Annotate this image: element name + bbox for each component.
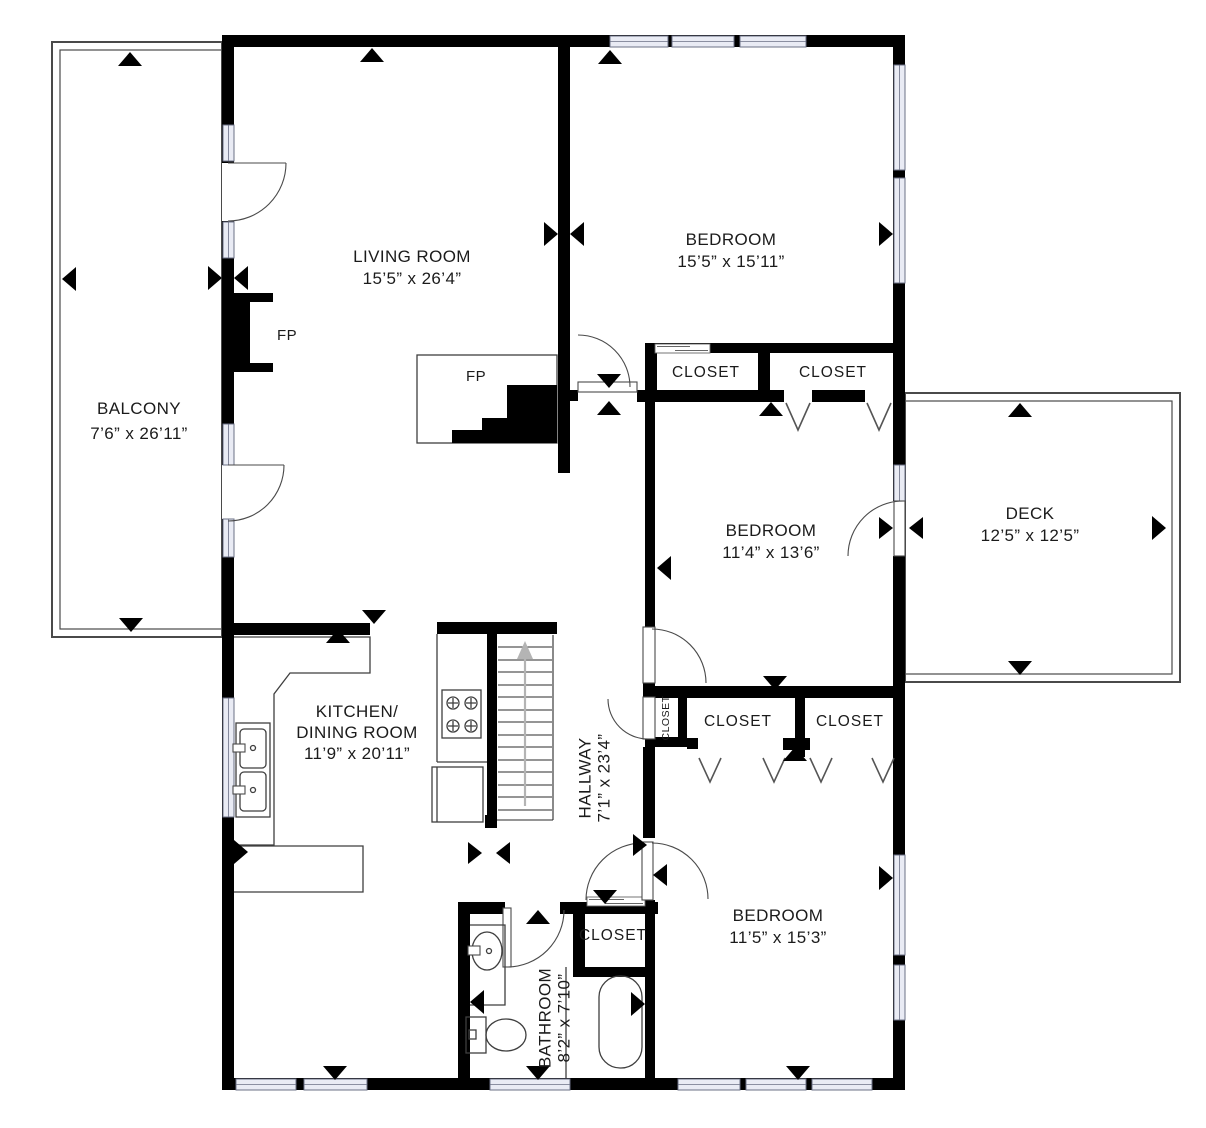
deck-label: DECK [1006, 504, 1055, 523]
bathroom-label: BATHROOM [536, 968, 555, 1068]
closet-top-right-label: CLOSET [799, 364, 867, 381]
bathtub [566, 967, 642, 1078]
fireplace-left-label: FP [277, 327, 297, 344]
hallway-dims: 7’1” x 23’4” [595, 734, 614, 823]
kitchen-counter [234, 634, 487, 892]
living-room-dims: 15’5” x 26’4” [363, 269, 462, 288]
closet-lower-left-label: CLOSET [704, 713, 772, 730]
stove [442, 690, 481, 738]
closet-top-left-label: CLOSET [672, 364, 740, 381]
fireplace-center-label: FP [466, 368, 486, 385]
bedroom-middle-label: BEDROOM [726, 521, 817, 540]
kitchen-label-line2: DINING ROOM [296, 723, 418, 742]
hall-closet-door [608, 697, 655, 739]
bedroom-middle-dims: 11’4” x 13’6” [722, 543, 820, 562]
closet-lower-right-label: CLOSET [816, 713, 884, 730]
dishwasher [432, 767, 483, 822]
kitchen-dims: 11’9” x 20’11” [304, 744, 410, 763]
closet-hall-small-label: CLOSET [660, 695, 672, 740]
bedroom-bottom-label: BEDROOM [733, 906, 824, 925]
stair-direction-arrow [517, 641, 533, 806]
living-room-label: LIVING ROOM [353, 247, 471, 266]
balcony-label: BALCONY [97, 399, 181, 418]
balcony-dims: 7’6” x 26’11” [90, 424, 188, 443]
toilet [466, 1017, 526, 1053]
staircase [497, 635, 553, 820]
balcony-railing [52, 42, 222, 637]
bedroom-top-dims: 15’5” x 15’11” [677, 252, 784, 271]
hallway-label: HALLWAY [576, 738, 595, 819]
bedroom-bottom-dims: 11’5” x 15’3” [729, 928, 827, 947]
bedroom-top-label: BEDROOM [686, 230, 777, 249]
balcony-door-upper [228, 163, 286, 221]
floor-plan-page: BALCONY 7’6” x 26’11” LIVING ROOM 15’5” … [0, 0, 1206, 1128]
balcony-door-lower [228, 465, 284, 521]
fireplace-left [234, 293, 273, 372]
closet-bathroom-label: CLOSET [579, 927, 647, 944]
bedroom-middle-door [643, 627, 706, 683]
kitchen-label-line1: KITCHEN/ [316, 702, 399, 721]
deck-door [848, 501, 905, 556]
kitchen-sink [233, 723, 270, 817]
deck-dims: 12’5” x 12’5” [981, 526, 1080, 545]
bathroom-vanity [468, 925, 505, 1005]
bathroom-dims: 8’2” x 7’10” [555, 974, 574, 1063]
fireplace-center [417, 355, 557, 443]
floor-plan-drawing: BALCONY 7’6” x 26’11” LIVING ROOM 15’5” … [0, 0, 1206, 1128]
